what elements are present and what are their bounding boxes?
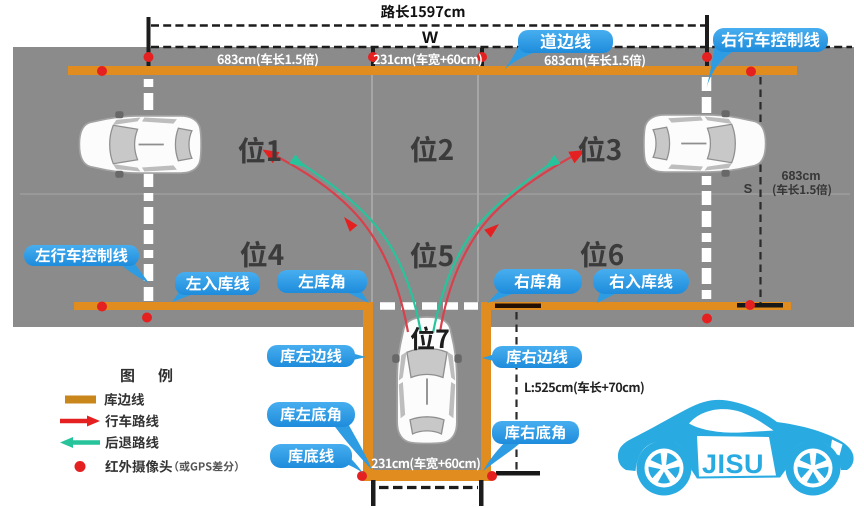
svg-text:JISU: JISU bbox=[702, 449, 764, 479]
svg-text:683cm: 683cm bbox=[782, 169, 821, 183]
svg-text:S: S bbox=[744, 181, 753, 196]
svg-text:W: W bbox=[422, 28, 439, 47]
